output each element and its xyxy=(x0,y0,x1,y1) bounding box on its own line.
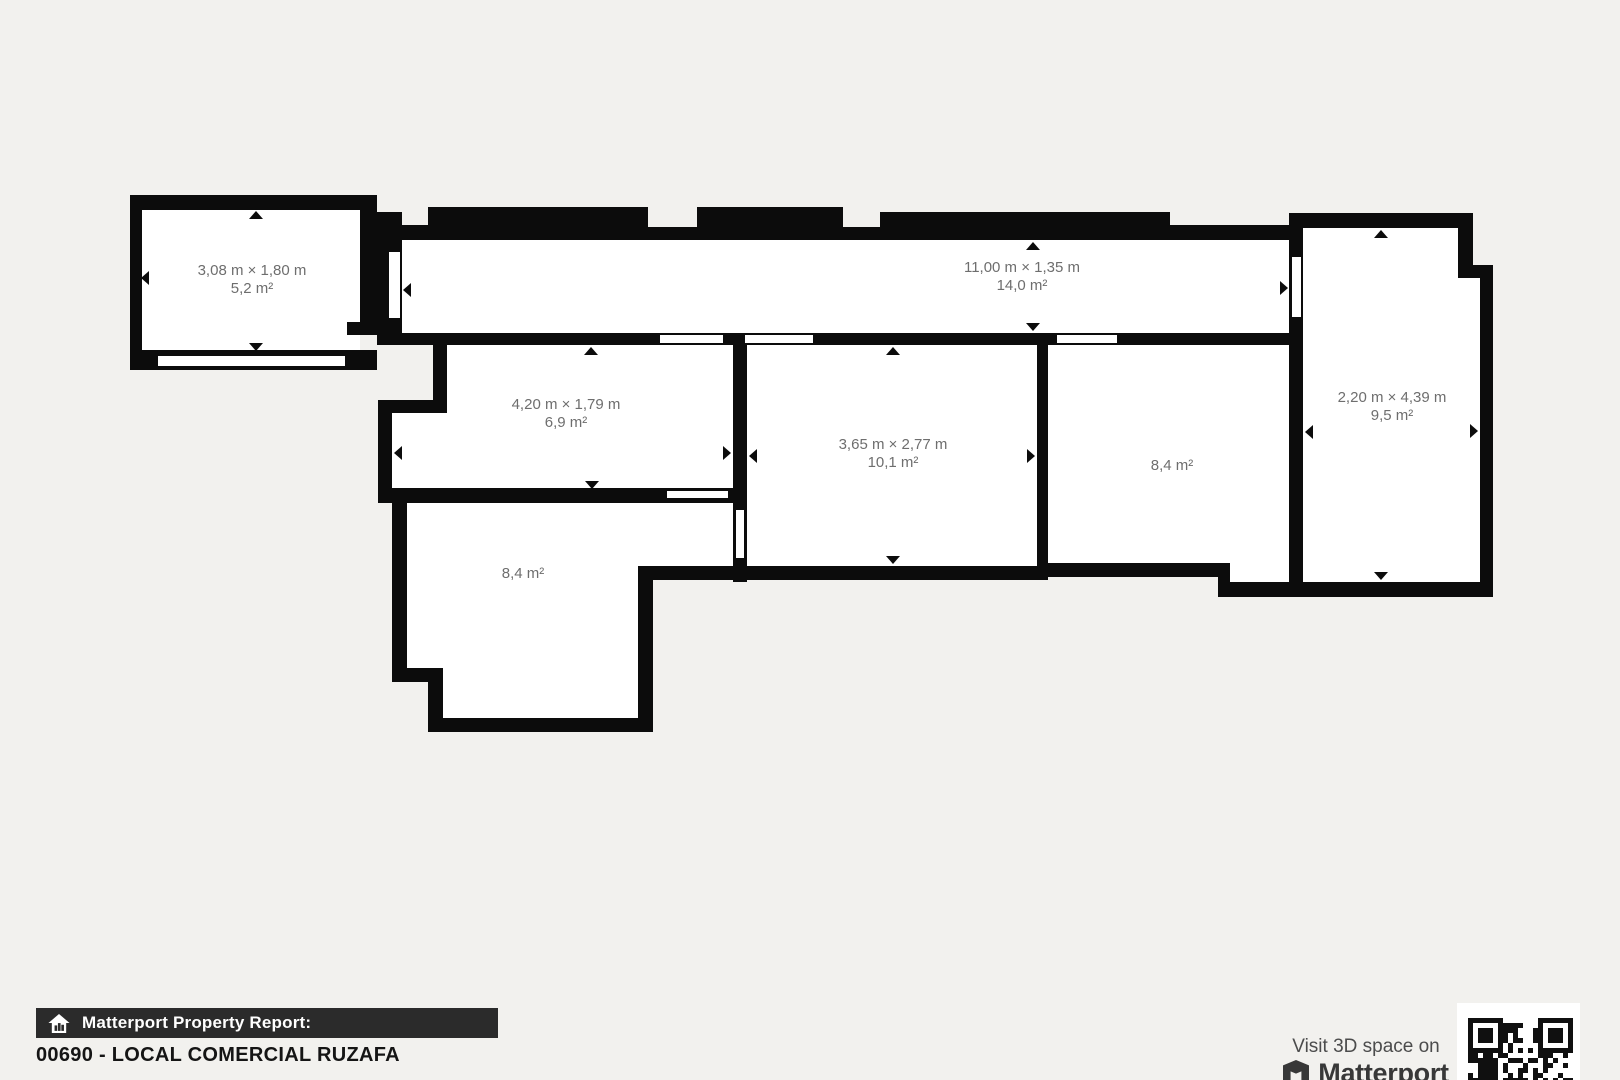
room-area-label: 8,4 m² xyxy=(1151,457,1194,474)
room-area-label: 9,5 m² xyxy=(1371,407,1414,424)
wall-segment xyxy=(843,227,880,240)
door-opening xyxy=(736,510,744,558)
property-title: 00690 - LOCAL COMERCIAL RUZAFA xyxy=(36,1044,400,1067)
wall-segment xyxy=(392,498,407,682)
room-area-label: 8,4 m² xyxy=(502,565,545,582)
wall-segment xyxy=(1048,563,1218,577)
house-icon xyxy=(48,1014,70,1033)
wall-segment xyxy=(378,400,392,503)
qr-code-modules xyxy=(1468,1018,1573,1080)
wall-segment xyxy=(697,207,843,240)
wall-segment xyxy=(648,227,697,240)
report-bar-label: Matterport Property Report: xyxy=(82,1013,311,1033)
room-right-floor-main xyxy=(1303,278,1480,582)
room-right-84-floor-pocket xyxy=(1230,563,1289,582)
wall-segment xyxy=(433,333,447,410)
property-report-page: 3,08 m × 1,80 m 5,2 m² 11,00 m × 1,35 m … xyxy=(0,0,1620,1080)
wall-segment xyxy=(428,718,648,732)
room-dimensions-label: 2,20 m × 4,39 m xyxy=(1338,389,1447,406)
wall-segment xyxy=(140,195,377,210)
wall-segment xyxy=(638,566,653,732)
wall-segment xyxy=(638,566,1048,580)
door-opening xyxy=(389,252,400,318)
window-opening xyxy=(745,335,813,343)
wall-segment xyxy=(1170,225,1289,240)
window-opening xyxy=(1057,335,1117,343)
door-opening xyxy=(1292,257,1301,317)
room-area-label: 10,1 m² xyxy=(868,454,919,471)
qr-code xyxy=(1457,1003,1580,1080)
wall-segment xyxy=(130,195,142,370)
matterport-brand: Matterport xyxy=(1246,1060,1486,1080)
window-opening xyxy=(660,335,723,343)
wall-segment xyxy=(402,225,428,240)
wall-segment xyxy=(360,195,377,322)
wall-segment xyxy=(428,207,648,240)
report-bar: Matterport Property Report: xyxy=(36,1008,498,1038)
wall-segment xyxy=(1480,265,1493,597)
window-opening xyxy=(158,356,345,366)
room-area-label: 6,9 m² xyxy=(545,414,588,431)
room-dimensions-label: 3,08 m × 1,80 m xyxy=(198,262,307,279)
room-right-84-floor xyxy=(1048,342,1289,563)
room-bottom-84-floor-main xyxy=(443,502,638,718)
room-dimensions-label: 4,20 m × 1,79 m xyxy=(512,396,621,413)
wall-segment xyxy=(1218,563,1230,597)
room-dimensions-label: 3,65 m × 2,77 m xyxy=(839,436,948,453)
wall-segment xyxy=(880,212,1170,240)
wall-segment xyxy=(1037,333,1048,580)
floor-plan: 3,08 m × 1,80 m 5,2 m² 11,00 m × 1,35 m … xyxy=(0,0,1620,780)
matterport-logo-icon xyxy=(1283,1060,1309,1080)
room-floors xyxy=(142,210,1480,718)
wall-segment xyxy=(1289,582,1493,597)
window-opening xyxy=(667,491,728,498)
matterport-brand-text: Matterport xyxy=(1318,1060,1449,1080)
room-area-label: 14,0 m² xyxy=(997,277,1048,294)
wall-segment xyxy=(377,333,1303,345)
corridor-floor xyxy=(402,240,1289,333)
room-dimensions-label: 11,00 m × 1,35 m xyxy=(964,259,1080,276)
wall-segment xyxy=(1289,213,1473,228)
visit-3d-text: Visit 3D space on xyxy=(1246,1036,1486,1058)
room-area-label: 5,2 m² xyxy=(231,280,274,297)
